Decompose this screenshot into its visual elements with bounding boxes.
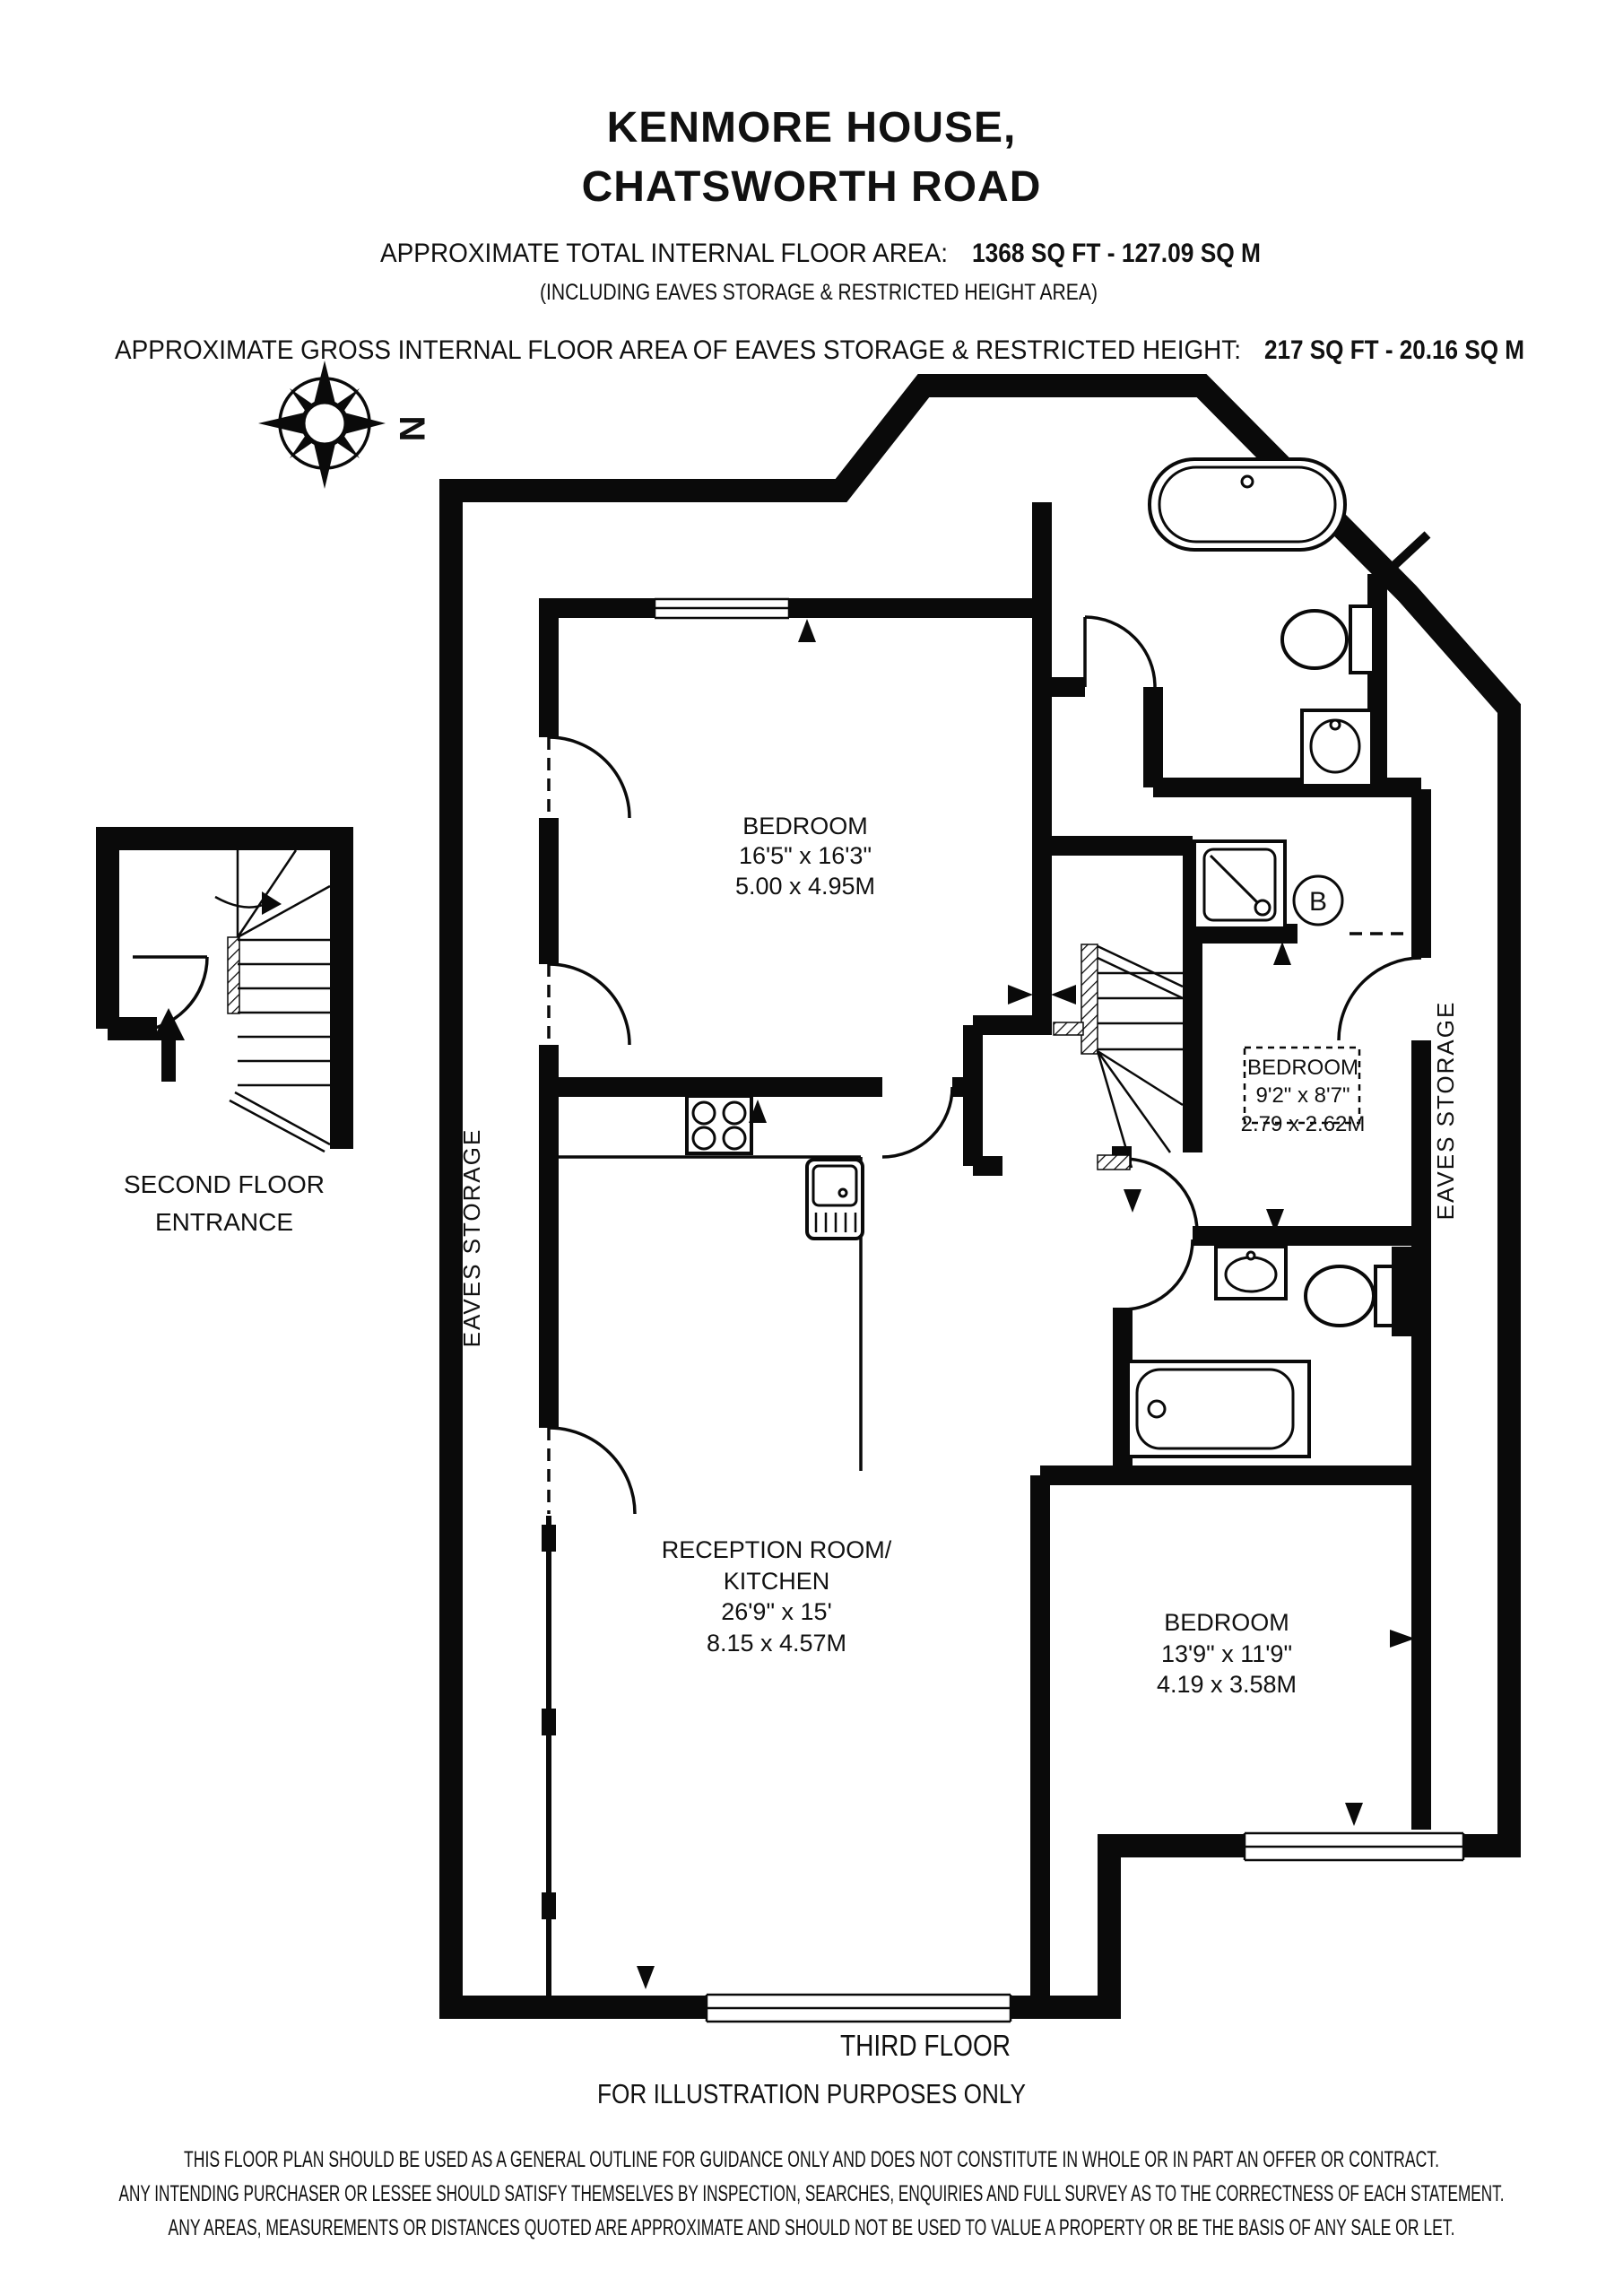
bedroom1-window bbox=[655, 596, 789, 621]
boiler-label: B bbox=[1309, 887, 1327, 917]
bedroom2-imperial: 9'2" x 8'7" bbox=[1256, 1083, 1350, 1108]
room-labels: BEDROOM 16'5" x 16'3" 5.00 x 4.95M BEDRO… bbox=[458, 813, 1459, 1698]
eaves-storage-right-label: EAVES STORAGE bbox=[1432, 1001, 1459, 1221]
bedroom1-metric: 5.00 x 4.95M bbox=[735, 873, 875, 900]
reception-name-line2: KITCHEN bbox=[724, 1568, 830, 1595]
sink2-icon bbox=[1216, 1247, 1286, 1299]
bathtub2-icon bbox=[1128, 1361, 1309, 1457]
shower-icon bbox=[1194, 841, 1285, 928]
total-area-label: APPROXIMATE TOTAL INTERNAL FLOOR AREA: bbox=[380, 239, 948, 268]
sink1-icon bbox=[1302, 710, 1372, 786]
door-bathroom2 bbox=[1123, 1239, 1193, 1309]
second-floor-entrance-inset: SECOND FLOOR ENTRANCE bbox=[96, 839, 353, 1236]
door-bedroom2 bbox=[1339, 934, 1421, 1040]
disclaimer-line3: ANY AREAS, MEASUREMENTS OR DISTANCES QUO… bbox=[169, 2215, 1455, 2240]
bedroom3-window bbox=[1245, 1830, 1463, 1863]
bedroom1-imperial: 16'5" x 16'3" bbox=[739, 842, 872, 869]
boiler-badge: B bbox=[1294, 876, 1342, 925]
door-bay-bathroom bbox=[1085, 617, 1155, 687]
compass-north-label: N bbox=[392, 416, 431, 442]
toilet1-icon bbox=[1282, 606, 1374, 673]
disclaimer-line2: ANY INTENDING PURCHASER OR LESSEE SHOULD… bbox=[119, 2181, 1505, 2206]
including-note: (INCLUDING EAVES STORAGE & RESTRICTED HE… bbox=[540, 280, 1098, 305]
inset-staircase bbox=[215, 850, 330, 1152]
reception-metric: 8.15 x 4.57M bbox=[707, 1630, 846, 1657]
reception-imperial: 26'9" x 15' bbox=[721, 1598, 831, 1625]
bedroom1-name: BEDROOM bbox=[742, 813, 868, 839]
entrance-arrow-icon bbox=[152, 1008, 185, 1082]
page-title-line1: KENMORE HOUSE, bbox=[607, 104, 1017, 152]
central-staircase bbox=[1054, 944, 1183, 1170]
door-eaves-to-reception bbox=[549, 1428, 635, 1514]
door-reception-entry bbox=[882, 1087, 952, 1157]
gross-area-label: APPROXIMATE GROSS INTERNAL FLOOR AREA OF… bbox=[115, 335, 1241, 365]
inner-walls bbox=[539, 502, 1428, 2007]
compass-rose-icon: N bbox=[258, 361, 431, 489]
door-eaves-to-bedroom1-upper bbox=[549, 737, 629, 818]
floorplan-canvas: KENMORE HOUSE, CHATSWORTH ROAD APPROXIMA… bbox=[0, 0, 1623, 2296]
header: KENMORE HOUSE, CHATSWORTH ROAD APPROXIMA… bbox=[115, 104, 1524, 365]
bedroom2-name: BEDROOM bbox=[1247, 1056, 1358, 1080]
bedroom3-name: BEDROOM bbox=[1164, 1609, 1289, 1636]
illustration-note: FOR ILLUSTRATION PURPOSES ONLY bbox=[597, 2078, 1026, 2109]
reception-window bbox=[707, 1991, 1011, 2024]
bedroom2-metric: 2.79 x 2.62M bbox=[1241, 1112, 1366, 1136]
floorplan-page: KENMORE HOUSE, CHATSWORTH ROAD APPROXIMA… bbox=[0, 0, 1623, 2296]
bedroom3-imperial: 13'9" x 11'9" bbox=[1161, 1640, 1292, 1667]
gross-area-value: 217 SQ FT - 20.16 SQ M bbox=[1264, 335, 1524, 365]
total-area-value: 1368 SQ FT - 127.09 SQ M bbox=[972, 239, 1261, 268]
inset-label-line2: ENTRANCE bbox=[155, 1208, 293, 1236]
inset-label-line1: SECOND FLOOR bbox=[124, 1170, 325, 1198]
bay-bathtub-icon bbox=[1150, 459, 1345, 550]
hob-icon bbox=[687, 1096, 751, 1153]
reception-name-line1: RECEPTION ROOM/ bbox=[662, 1536, 892, 1563]
kitchen-sink-icon bbox=[807, 1160, 863, 1239]
page-title-line2: CHATSWORTH ROAD bbox=[582, 163, 1042, 211]
eaves-storage-left-label: EAVES STORAGE bbox=[458, 1128, 485, 1348]
door-eaves-to-bedroom1-lower bbox=[549, 964, 629, 1045]
bedroom3-metric: 4.19 x 3.58M bbox=[1157, 1671, 1297, 1698]
toilet2-icon bbox=[1306, 1266, 1393, 1326]
floor-label: THIRD FLOOR bbox=[840, 2029, 1011, 2062]
disclaimer-line1: THIS FLOOR PLAN SHOULD BE USED AS A GENE… bbox=[184, 2147, 1439, 2172]
footer: THIRD FLOOR FOR ILLUSTRATION PURPOSES ON… bbox=[119, 2029, 1505, 2240]
